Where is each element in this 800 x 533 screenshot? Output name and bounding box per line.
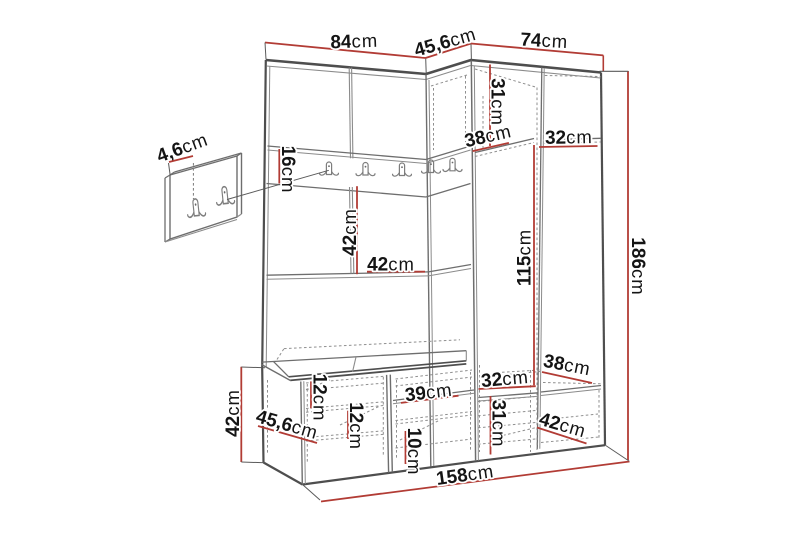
svg-text:42cm: 42cm — [339, 208, 361, 256]
svg-text:32cm: 32cm — [545, 126, 593, 149]
svg-text:84cm: 84cm — [330, 30, 379, 54]
svg-text:42cm: 42cm — [367, 254, 415, 276]
svg-text:10cm: 10cm — [403, 428, 425, 476]
svg-text:31cm: 31cm — [488, 400, 510, 448]
svg-text:12cm: 12cm — [309, 374, 331, 422]
svg-text:115cm: 115cm — [514, 229, 536, 286]
svg-text:12cm: 12cm — [345, 402, 367, 450]
svg-text:31cm: 31cm — [487, 78, 509, 126]
svg-text:186cm: 186cm — [627, 237, 649, 295]
svg-text:74cm: 74cm — [520, 29, 569, 53]
svg-text:42cm: 42cm — [222, 389, 244, 437]
svg-text:16cm: 16cm — [277, 146, 299, 194]
